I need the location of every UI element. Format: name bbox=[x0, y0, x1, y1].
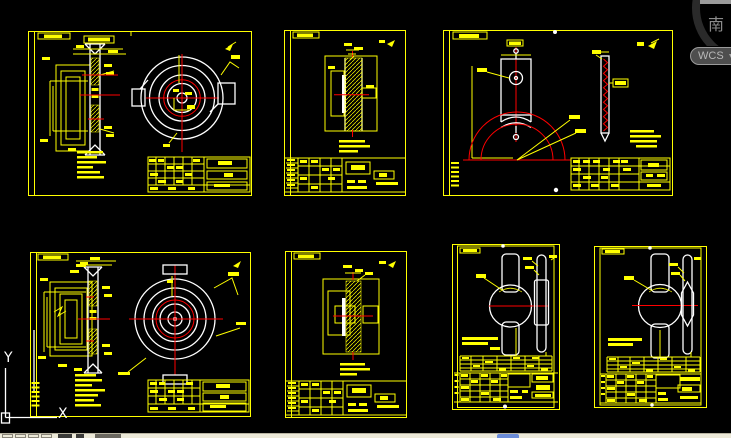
taskbar-button[interactable] bbox=[15, 434, 26, 438]
parts-list-table bbox=[460, 328, 552, 371]
part-view bbox=[624, 254, 698, 358]
taskbar[interactable] bbox=[0, 433, 731, 438]
side-part-view bbox=[523, 255, 549, 352]
front-view bbox=[132, 54, 240, 152]
side-view bbox=[592, 50, 661, 148]
technical-notes bbox=[340, 363, 370, 376]
ucs-y-label: Y bbox=[3, 350, 13, 366]
ucs-icon[interactable]: Y X bbox=[0, 340, 80, 430]
taskbar-icon[interactable] bbox=[95, 434, 121, 438]
scale-arrow-mark bbox=[233, 261, 241, 268]
scale-arrow-mark bbox=[379, 40, 395, 47]
wcs-label: WCS bbox=[698, 50, 724, 62]
scale-arrow-mark bbox=[225, 42, 236, 51]
title-block bbox=[286, 381, 407, 415]
side-part-view bbox=[669, 255, 694, 354]
title-block bbox=[600, 374, 701, 403]
drawing-sheet-pulley-1[interactable] bbox=[28, 31, 252, 196]
title-block bbox=[148, 157, 250, 192]
drawing-sheet-ball-stud-1[interactable] bbox=[452, 244, 560, 410]
taskbar-icon[interactable] bbox=[76, 434, 84, 438]
sheet-border bbox=[444, 30, 673, 196]
ucs-x-label: X bbox=[58, 406, 68, 422]
cad-viewport[interactable]: 南 WCS ▼ Y X bbox=[0, 0, 731, 438]
taskbar-active-item[interactable] bbox=[497, 434, 519, 438]
taskbar-button[interactable] bbox=[28, 434, 39, 438]
drawing-sheet-bracket[interactable] bbox=[443, 30, 673, 196]
title-block bbox=[285, 158, 406, 192]
section-view bbox=[40, 36, 126, 155]
scale-arrow-mark bbox=[379, 261, 396, 268]
taskbar-button[interactable] bbox=[41, 434, 52, 438]
parts-list-table bbox=[607, 330, 700, 372]
technical-notes bbox=[339, 140, 370, 153]
viewcube-face-edge[interactable] bbox=[700, 0, 731, 4]
wcs-dropdown-button[interactable]: WCS ▼ bbox=[690, 47, 731, 65]
technical-notes bbox=[608, 338, 642, 346]
front-view bbox=[118, 265, 246, 384]
viewcube-south-label[interactable]: 南 bbox=[708, 18, 724, 34]
drawing-sheet-section-2[interactable] bbox=[285, 251, 407, 418]
revision-table bbox=[451, 162, 459, 187]
front-view bbox=[463, 40, 586, 160]
section-view bbox=[325, 43, 377, 137]
scale-arrow-mark bbox=[694, 257, 701, 260]
title-block bbox=[571, 158, 670, 190]
taskbar-button[interactable] bbox=[2, 434, 13, 438]
drawing-sheet-ball-stud-2[interactable] bbox=[594, 246, 707, 408]
taskbar-icon[interactable] bbox=[58, 434, 72, 438]
title-block bbox=[454, 373, 558, 402]
scale-arrow-mark bbox=[549, 255, 557, 260]
drawing-sheet-section-1[interactable] bbox=[284, 30, 406, 196]
technical-notes bbox=[462, 337, 500, 350]
title-block bbox=[148, 380, 249, 412]
section-view bbox=[323, 265, 379, 360]
